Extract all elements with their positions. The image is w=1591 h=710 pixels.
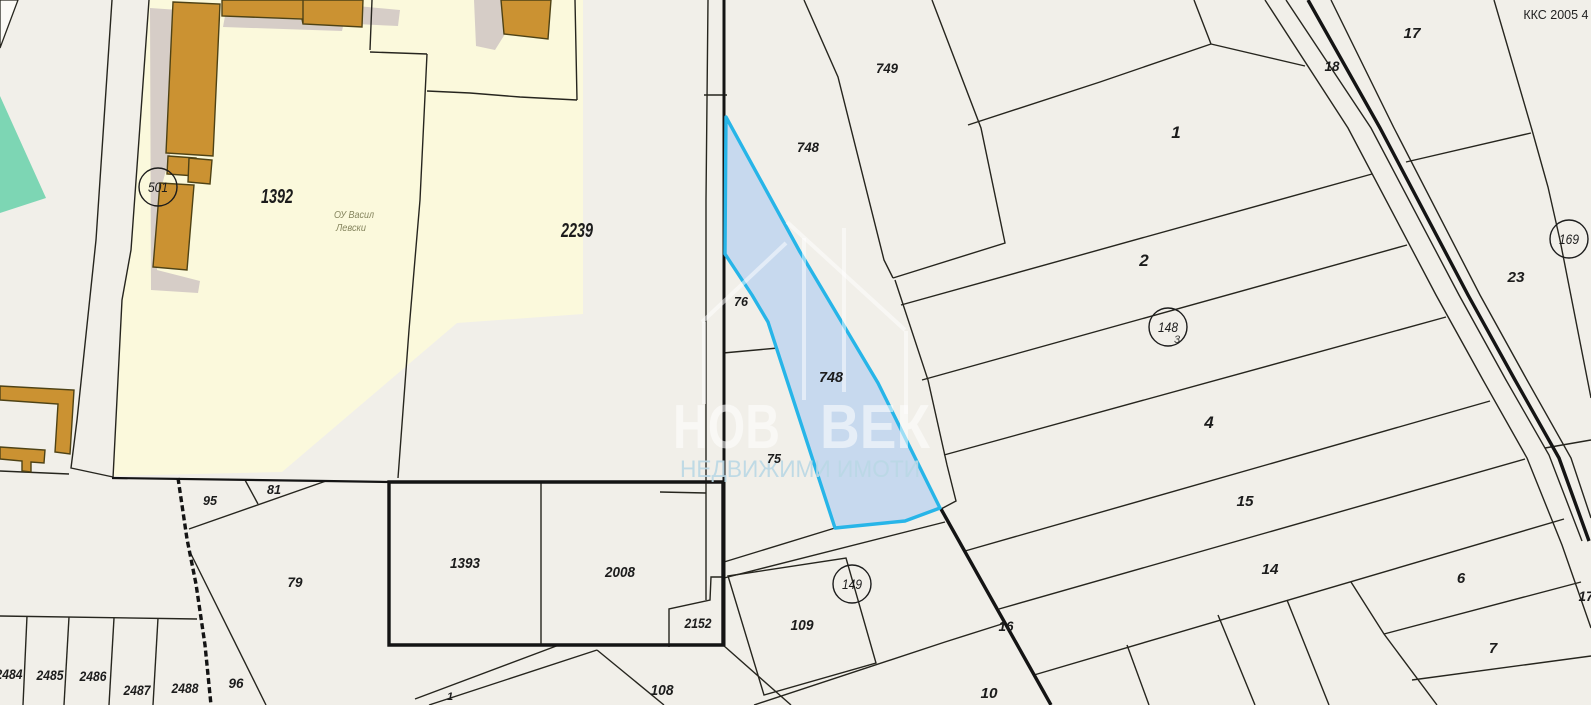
svg-text:ВЕК: ВЕК [820, 393, 930, 462]
svg-text:169: 169 [1559, 231, 1579, 247]
svg-text:748: 748 [797, 139, 819, 155]
svg-text:ОУ Васил: ОУ Васил [334, 209, 374, 221]
svg-text:17: 17 [1579, 588, 1591, 604]
svg-text:148: 148 [1158, 319, 1178, 335]
svg-text:Левски: Левски [335, 222, 366, 234]
svg-text:17: 17 [1404, 25, 1422, 42]
svg-text:2484: 2484 [0, 667, 23, 682]
svg-text:149: 149 [842, 576, 862, 592]
svg-text:109: 109 [791, 617, 815, 634]
svg-text:75: 75 [767, 451, 782, 466]
svg-text:748: 748 [819, 369, 844, 386]
svg-text:НОВ: НОВ [673, 393, 780, 462]
svg-text:2239: 2239 [560, 220, 593, 242]
svg-text:15: 15 [1237, 493, 1255, 510]
svg-text:14: 14 [1262, 561, 1280, 578]
svg-text:18: 18 [1325, 58, 1340, 74]
svg-text:2485: 2485 [36, 668, 64, 683]
svg-text:10: 10 [981, 685, 999, 702]
svg-text:2486: 2486 [79, 669, 107, 684]
svg-text:96: 96 [229, 675, 244, 691]
svg-text:16: 16 [999, 618, 1014, 634]
svg-text:6: 6 [1457, 570, 1466, 587]
svg-text:95: 95 [203, 493, 218, 508]
svg-text:2008: 2008 [604, 565, 636, 581]
svg-text:76: 76 [734, 294, 749, 309]
svg-text:1392: 1392 [261, 186, 293, 208]
svg-text:501: 501 [148, 179, 168, 195]
svg-text:23: 23 [1506, 269, 1525, 286]
svg-text:1: 1 [447, 691, 453, 703]
svg-text:749: 749 [876, 60, 898, 76]
svg-text:79: 79 [288, 574, 303, 590]
svg-text:1: 1 [1171, 123, 1180, 142]
svg-text:4: 4 [1203, 413, 1214, 432]
svg-text:2487: 2487 [123, 683, 152, 698]
svg-text:81: 81 [267, 482, 281, 497]
svg-text:2152: 2152 [684, 616, 712, 631]
svg-text:1393: 1393 [450, 556, 480, 572]
svg-text:2: 2 [1138, 251, 1149, 270]
svg-text:ККС 2005 4: ККС 2005 4 [1523, 8, 1591, 22]
svg-text:108: 108 [651, 682, 675, 699]
svg-text:НЕДВИЖИМИ ИМОТИ: НЕДВИЖИМИ ИМОТИ [680, 456, 920, 483]
svg-text:7: 7 [1489, 640, 1498, 657]
svg-text:2488: 2488 [171, 681, 199, 696]
